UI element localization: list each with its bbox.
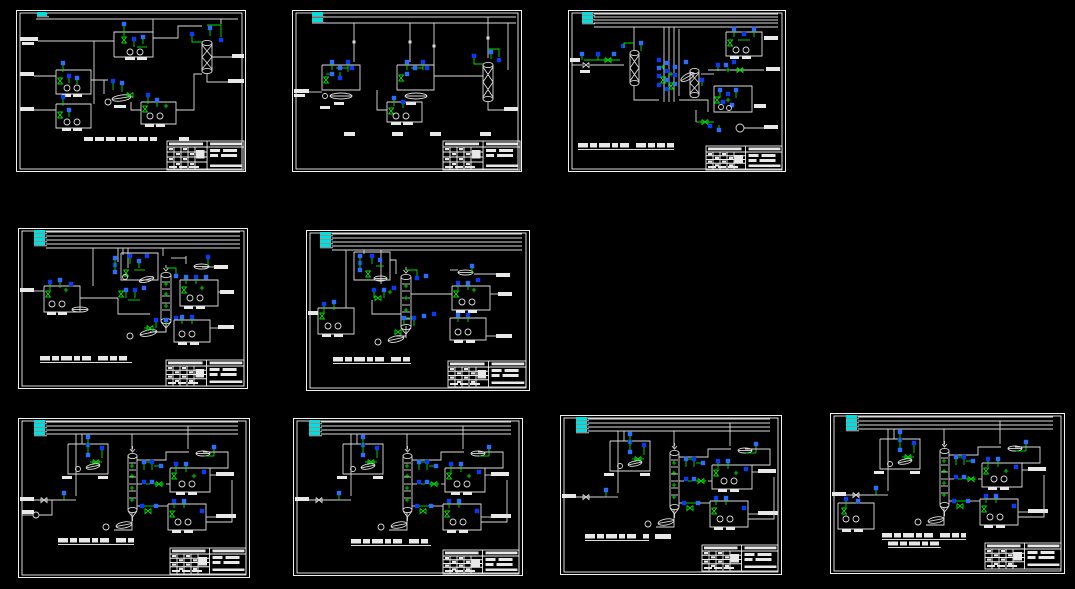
text-label-block[interactable] xyxy=(137,57,147,60)
valve-icon[interactable] xyxy=(661,77,666,83)
text-label-block[interactable] xyxy=(391,122,401,125)
utility-header-label[interactable] xyxy=(34,242,45,245)
valve-icon[interactable] xyxy=(58,81,63,84)
title-block-header[interactable] xyxy=(492,363,525,366)
drawing-title-text[interactable] xyxy=(40,356,50,361)
title-block-field[interactable] xyxy=(1041,551,1055,554)
sheet-frame[interactable] xyxy=(831,414,1065,574)
title-block-cell[interactable] xyxy=(466,561,470,563)
instrument-square[interactable] xyxy=(596,52,600,56)
valve-icon[interactable] xyxy=(375,296,381,301)
instrument-square[interactable] xyxy=(190,32,194,36)
pump-circle[interactable] xyxy=(455,329,461,335)
drawing-title-text[interactable] xyxy=(333,357,343,362)
title-block-field[interactable] xyxy=(221,154,237,157)
valve-icon[interactable] xyxy=(46,294,51,297)
text-label-block[interactable] xyxy=(758,469,776,473)
manual-valve-icon[interactable] xyxy=(586,63,589,68)
heat-exchanger[interactable] xyxy=(112,94,132,103)
column-vessel[interactable] xyxy=(630,50,639,85)
pipe-line[interactable] xyxy=(634,86,659,100)
title-block-header[interactable] xyxy=(749,148,781,151)
title-block-cell[interactable] xyxy=(464,377,468,379)
valve-icon[interactable] xyxy=(122,37,127,43)
instrument-square[interactable] xyxy=(700,78,704,82)
title-block-cell[interactable] xyxy=(725,556,729,558)
text-label-block[interactable] xyxy=(504,107,518,111)
instrument-square[interactable] xyxy=(466,281,470,285)
pump-circle[interactable] xyxy=(105,99,111,105)
title-block-cell[interactable] xyxy=(718,561,722,563)
title-block[interactable] xyxy=(448,361,526,387)
title-block-cell[interactable] xyxy=(464,368,468,370)
instrument-square[interactable] xyxy=(1024,440,1028,444)
pipe-line[interactable] xyxy=(412,452,464,460)
title-block-cell[interactable] xyxy=(452,561,456,563)
instrument-square[interactable] xyxy=(415,504,419,508)
title-block-header[interactable] xyxy=(168,362,203,365)
text-label-block[interactable] xyxy=(604,473,614,476)
instrument-square[interactable] xyxy=(692,477,696,481)
title-block-cell[interactable] xyxy=(708,161,712,163)
instrument-square[interactable] xyxy=(912,441,916,445)
title-block-stamp[interactable] xyxy=(731,554,740,563)
instrument-square[interactable] xyxy=(457,499,461,503)
valve-icon[interactable] xyxy=(143,106,148,112)
drawing-title-text[interactable] xyxy=(61,356,72,361)
pipe-line[interactable] xyxy=(390,260,396,274)
instrument-square[interactable] xyxy=(732,60,736,64)
drawing-title-text[interactable] xyxy=(363,539,370,544)
pump-circle[interactable] xyxy=(325,323,331,329)
title-block-field[interactable] xyxy=(210,368,220,371)
drawing-title-text[interactable] xyxy=(74,356,80,361)
title-block-stamp[interactable] xyxy=(199,557,208,566)
instrument-square[interactable] xyxy=(665,61,669,65)
utility-header-label[interactable] xyxy=(320,236,331,239)
title-block-cell[interactable] xyxy=(724,567,734,569)
valve-icon[interactable] xyxy=(661,80,666,83)
instrument-square[interactable] xyxy=(497,58,501,62)
drawing-title-text[interactable] xyxy=(391,357,401,362)
title-block[interactable] xyxy=(170,548,246,574)
drawing-title-text[interactable] xyxy=(385,539,391,544)
text-label-block[interactable] xyxy=(842,529,851,532)
valve-icon[interactable] xyxy=(728,43,733,46)
text-label-block[interactable] xyxy=(95,137,104,141)
instrument-square[interactable] xyxy=(417,480,421,484)
valve-icon[interactable] xyxy=(982,506,987,512)
pump-circle[interactable] xyxy=(127,333,133,339)
title-block-cell[interactable] xyxy=(1008,563,1012,565)
instrument-square[interactable] xyxy=(971,459,975,463)
title-block-cell[interactable] xyxy=(455,570,463,572)
instrument-square[interactable] xyxy=(459,462,463,466)
instrument-square[interactable] xyxy=(378,258,382,262)
utility-header-label[interactable] xyxy=(320,232,331,235)
text-label-block[interactable] xyxy=(764,36,778,40)
text-label-block[interactable] xyxy=(58,312,67,315)
pump-circle[interactable] xyxy=(645,521,651,527)
text-label-block[interactable] xyxy=(22,510,34,514)
drawing-title-text[interactable] xyxy=(909,542,920,546)
text-label-block[interactable] xyxy=(20,497,34,501)
sheet-frame[interactable] xyxy=(307,231,530,391)
drawing-title-text[interactable] xyxy=(354,357,365,362)
instrument-square[interactable] xyxy=(449,462,453,466)
pipe-line[interactable] xyxy=(153,26,202,38)
process-diagram[interactable] xyxy=(295,426,519,574)
title-block-field[interactable] xyxy=(497,154,513,157)
title-block-cell[interactable] xyxy=(172,564,176,566)
instrument-square[interactable] xyxy=(684,477,688,481)
drawing-title-text[interactable] xyxy=(372,539,383,544)
instrument-square[interactable] xyxy=(475,509,479,513)
instrument-square[interactable] xyxy=(628,432,632,436)
instrument-square[interactable] xyxy=(742,32,746,36)
pipe-line[interactable] xyxy=(207,74,230,82)
text-label-block[interactable] xyxy=(655,534,671,539)
pump-circle[interactable] xyxy=(74,85,80,91)
instrument-square[interactable] xyxy=(392,96,396,100)
instrument-square[interactable] xyxy=(665,78,669,82)
instrument-square[interactable] xyxy=(122,22,126,26)
title-block-cell[interactable] xyxy=(175,380,179,382)
pipe-line[interactable] xyxy=(372,300,401,314)
title-block-field[interactable] xyxy=(1028,556,1036,559)
instrument-square[interactable] xyxy=(200,509,204,513)
title-block-header[interactable] xyxy=(169,143,203,146)
instrument-square[interactable] xyxy=(361,453,365,457)
instrument-square[interactable] xyxy=(202,470,206,474)
instrument-square[interactable] xyxy=(639,41,643,45)
instrument-square[interactable] xyxy=(338,76,342,80)
instrument-square[interactable] xyxy=(100,446,104,450)
text-label-block[interactable] xyxy=(562,494,576,498)
text-label-block[interactable] xyxy=(172,530,181,533)
title-block-header[interactable] xyxy=(708,148,742,151)
text-label-block[interactable] xyxy=(334,334,343,337)
drawing-title-text[interactable] xyxy=(643,534,649,539)
pipe-line[interactable] xyxy=(478,452,503,468)
title-block-cell[interactable] xyxy=(190,153,194,155)
title-block-field[interactable] xyxy=(492,382,525,385)
text-label-block[interactable] xyxy=(456,310,465,313)
drawing-title-text[interactable] xyxy=(578,143,674,150)
text-label-block[interactable] xyxy=(726,527,735,530)
text-label-block[interactable] xyxy=(218,325,234,329)
column-vessel[interactable] xyxy=(940,441,949,516)
valve-icon[interactable] xyxy=(324,80,329,83)
heat-exchanger[interactable] xyxy=(361,463,376,471)
drawing-title-text[interactable] xyxy=(116,538,126,543)
sheet-4[interactable] xyxy=(18,228,248,389)
drawing-title-text[interactable] xyxy=(70,538,77,543)
title-block-header[interactable] xyxy=(486,552,518,555)
valve-icon[interactable] xyxy=(143,109,148,112)
title-block-cell[interactable] xyxy=(725,565,729,567)
instrument-square[interactable] xyxy=(111,79,115,83)
title-block-field[interactable] xyxy=(486,149,496,152)
drawing-title-text[interactable] xyxy=(627,534,636,539)
title-block-field[interactable] xyxy=(758,553,772,556)
title-block-field[interactable] xyxy=(745,553,755,556)
drawing-title-text[interactable] xyxy=(82,356,91,361)
pump-circle[interactable] xyxy=(59,301,65,307)
pump-circle[interactable] xyxy=(103,524,109,530)
text-label-block[interactable] xyxy=(754,104,766,108)
instrument-square[interactable] xyxy=(212,445,216,449)
text-label-block[interactable] xyxy=(62,128,71,131)
text-label-block[interactable] xyxy=(392,132,403,136)
utility-header-label[interactable] xyxy=(34,432,45,435)
pump-circle[interactable] xyxy=(335,323,341,329)
instrument-square[interactable] xyxy=(375,446,379,450)
pump-circle[interactable] xyxy=(717,516,723,522)
instrument-square[interactable] xyxy=(429,504,433,508)
title-block-stamp[interactable] xyxy=(196,369,205,378)
instrument-square[interactable] xyxy=(489,50,493,54)
instrument-square[interactable] xyxy=(86,435,90,439)
valve-icon[interactable] xyxy=(46,291,51,297)
column-top-nozzle[interactable] xyxy=(405,449,410,452)
instrument-square[interactable] xyxy=(402,316,406,320)
drawing-title-text[interactable] xyxy=(916,533,922,538)
instrument-square[interactable] xyxy=(752,27,756,31)
instrument-square[interactable] xyxy=(487,445,491,449)
title-block-cell[interactable] xyxy=(178,382,186,384)
column-vessel[interactable] xyxy=(403,507,412,512)
pump-circle[interactable] xyxy=(323,94,328,99)
sheet-outer-border[interactable] xyxy=(19,229,248,389)
pump-circle[interactable] xyxy=(197,295,203,301)
valve-icon[interactable] xyxy=(420,509,426,514)
instrument-square[interactable] xyxy=(612,52,616,56)
pump-circle[interactable] xyxy=(123,275,128,280)
drawing-title-text[interactable] xyxy=(599,143,610,148)
valve-icon[interactable] xyxy=(389,111,394,114)
column-vessel[interactable] xyxy=(161,272,171,277)
column-top-nozzle[interactable] xyxy=(164,268,169,271)
valve-icon[interactable] xyxy=(399,75,404,81)
column-vessel[interactable] xyxy=(202,68,212,73)
title-block-field[interactable] xyxy=(492,374,500,377)
title-block-cell[interactable] xyxy=(987,550,991,552)
instrument-square[interactable] xyxy=(120,81,124,85)
instrument-square[interactable] xyxy=(726,459,730,463)
pump-circle[interactable] xyxy=(727,106,732,111)
instrument-square[interactable] xyxy=(742,506,746,510)
title-block-cell[interactable] xyxy=(445,565,449,567)
valve-icon[interactable] xyxy=(170,514,175,517)
drawing-title-text[interactable] xyxy=(393,539,402,544)
heat-exchanger[interactable] xyxy=(139,275,155,284)
valve-icon[interactable] xyxy=(423,509,426,514)
instrument-square[interactable] xyxy=(155,98,159,102)
sheet-outer-border[interactable] xyxy=(831,414,1065,574)
drawing-title-text[interactable] xyxy=(590,143,597,148)
drawing-title-text[interactable] xyxy=(100,538,109,543)
column-vessel[interactable] xyxy=(483,62,493,67)
pipe-line[interactable] xyxy=(203,452,228,468)
column-vessel[interactable] xyxy=(670,504,679,509)
title-block-field[interactable] xyxy=(210,149,220,152)
title-block-field[interactable] xyxy=(210,381,243,384)
utility-header-label[interactable] xyxy=(37,12,47,16)
text-label-block[interactable] xyxy=(451,492,460,495)
drawing-title-text[interactable] xyxy=(882,533,892,538)
title-block-cell[interactable] xyxy=(445,166,453,168)
instrument-square[interactable] xyxy=(174,316,178,320)
title-block-field[interactable] xyxy=(210,154,218,157)
valve-icon[interactable] xyxy=(119,294,124,297)
heat-exchanger[interactable] xyxy=(458,270,473,275)
utility-header-label[interactable] xyxy=(309,424,320,427)
title-block-cell[interactable] xyxy=(183,148,187,150)
valve-icon[interactable] xyxy=(119,291,124,297)
title-block-stamp[interactable] xyxy=(196,150,205,159)
utility-header-label[interactable] xyxy=(320,240,331,243)
sheet-6[interactable] xyxy=(18,418,250,578)
instrument-square[interactable] xyxy=(370,254,374,258)
pump-circle[interactable] xyxy=(33,512,39,518)
title-block-header[interactable] xyxy=(450,363,485,366)
pump-circle[interactable] xyxy=(64,85,70,91)
instrument-square[interactable] xyxy=(346,60,350,64)
text-label-block[interactable] xyxy=(216,472,234,476)
valve-icon[interactable] xyxy=(984,471,989,474)
instrument-square[interactable] xyxy=(724,496,728,500)
pump-circle[interactable] xyxy=(157,113,163,119)
title-block-cell[interactable] xyxy=(175,371,179,373)
pump-circle[interactable] xyxy=(459,299,465,305)
utility-header-label[interactable] xyxy=(34,230,45,233)
title-block-cell[interactable] xyxy=(186,555,190,557)
title-block-field[interactable] xyxy=(226,556,240,559)
title-block-field[interactable] xyxy=(749,165,781,168)
text-label-block[interactable] xyxy=(996,525,1005,528)
title-block-cell[interactable] xyxy=(455,166,463,168)
utility-header-label[interactable] xyxy=(312,12,323,16)
title-block-cell[interactable] xyxy=(188,382,198,384)
instrument-square[interactable] xyxy=(844,497,848,501)
instrument-square[interactable] xyxy=(425,460,429,464)
text-label-block[interactable] xyxy=(730,56,739,59)
valve-icon[interactable] xyxy=(320,313,325,319)
instrument-square[interactable] xyxy=(732,27,736,31)
instrument-square[interactable] xyxy=(466,313,470,317)
pump-circle[interactable] xyxy=(721,478,727,484)
text-label-block[interactable] xyxy=(20,37,38,41)
text-label-block[interactable] xyxy=(468,310,477,313)
text-label-block[interactable] xyxy=(498,292,512,296)
drawing-title-text[interactable] xyxy=(52,356,59,361)
drawing-title-text[interactable] xyxy=(894,533,901,538)
pump-circle[interactable] xyxy=(987,514,993,520)
column-vessel[interactable] xyxy=(202,40,212,45)
utility-header[interactable] xyxy=(846,415,1053,431)
title-block-stamp[interactable] xyxy=(472,150,481,159)
instrument-square[interactable] xyxy=(372,288,376,292)
title-block-cell[interactable] xyxy=(168,367,172,369)
text-label-block[interactable] xyxy=(150,137,157,141)
valve-icon[interactable] xyxy=(454,294,459,297)
heat-exchanger[interactable] xyxy=(898,458,913,466)
instrument-square[interactable] xyxy=(665,69,669,73)
text-label-block[interactable] xyxy=(570,58,580,62)
title-block-field[interactable] xyxy=(760,159,776,162)
instrument-square[interactable] xyxy=(358,268,362,272)
title-block-cell[interactable] xyxy=(172,555,176,557)
title-block-cell[interactable] xyxy=(182,570,190,572)
title-block-field[interactable] xyxy=(749,159,757,162)
utility-header[interactable] xyxy=(576,417,770,433)
text-label-block[interactable] xyxy=(742,56,751,59)
line-break-marker[interactable] xyxy=(409,41,412,44)
instrument-square[interactable] xyxy=(150,460,154,464)
instrument-square[interactable] xyxy=(330,72,334,76)
text-label-block[interactable] xyxy=(295,497,309,501)
utility-header-label[interactable] xyxy=(846,419,857,422)
text-label-block[interactable] xyxy=(1000,487,1009,490)
valve-icon[interactable] xyxy=(960,504,963,509)
title-block[interactable] xyxy=(702,545,778,571)
title-block-field[interactable] xyxy=(762,154,776,157)
utility-header-label[interactable] xyxy=(576,417,587,420)
title-block-cell[interactable] xyxy=(987,565,995,567)
instrument-square[interactable] xyxy=(456,313,460,317)
instrument-square[interactable] xyxy=(621,44,625,48)
title-block-field[interactable] xyxy=(210,373,218,376)
text-label-block[interactable] xyxy=(766,67,780,71)
pump-circle[interactable] xyxy=(915,519,921,525)
text-label-block[interactable] xyxy=(216,514,236,518)
pipe-line[interactable] xyxy=(318,308,354,334)
valve-icon[interactable] xyxy=(687,506,693,511)
sheet-inner-border[interactable] xyxy=(20,13,242,169)
sheet-frame[interactable] xyxy=(19,229,248,389)
valve-icon[interactable] xyxy=(842,508,847,514)
pump-circle[interactable] xyxy=(393,113,399,119)
instrument-square[interactable] xyxy=(75,76,79,80)
title-block-field[interactable] xyxy=(486,165,518,168)
heat-exchanger[interactable] xyxy=(405,93,427,99)
title-block-cell[interactable] xyxy=(169,166,177,168)
title-block-field[interactable] xyxy=(221,373,237,376)
drawing-title-text[interactable] xyxy=(940,533,950,538)
valve-icon[interactable] xyxy=(389,108,394,114)
title-block-field[interactable] xyxy=(745,566,777,569)
text-label-block[interactable] xyxy=(188,492,197,495)
title-block-cell[interactable] xyxy=(459,148,463,150)
title-block[interactable] xyxy=(443,550,519,574)
utility-header-label[interactable] xyxy=(846,415,857,418)
instrument-square[interactable] xyxy=(432,312,436,316)
instrument-square[interactable] xyxy=(145,254,149,258)
title-block-stamp[interactable] xyxy=(472,559,481,568)
instrument-square[interactable] xyxy=(350,66,354,70)
instrument-square[interactable] xyxy=(456,281,460,285)
valve-icon[interactable] xyxy=(712,508,717,514)
text-label-block[interactable] xyxy=(294,89,309,93)
text-label-block[interactable] xyxy=(463,492,472,495)
title-block-cell[interactable] xyxy=(182,367,186,369)
instrument-square[interactable] xyxy=(142,460,146,464)
title-block-cell[interactable] xyxy=(987,559,991,561)
text-label-block[interactable] xyxy=(22,42,34,45)
title-block-cell[interactable] xyxy=(168,376,172,378)
instrument-square[interactable] xyxy=(962,455,966,459)
